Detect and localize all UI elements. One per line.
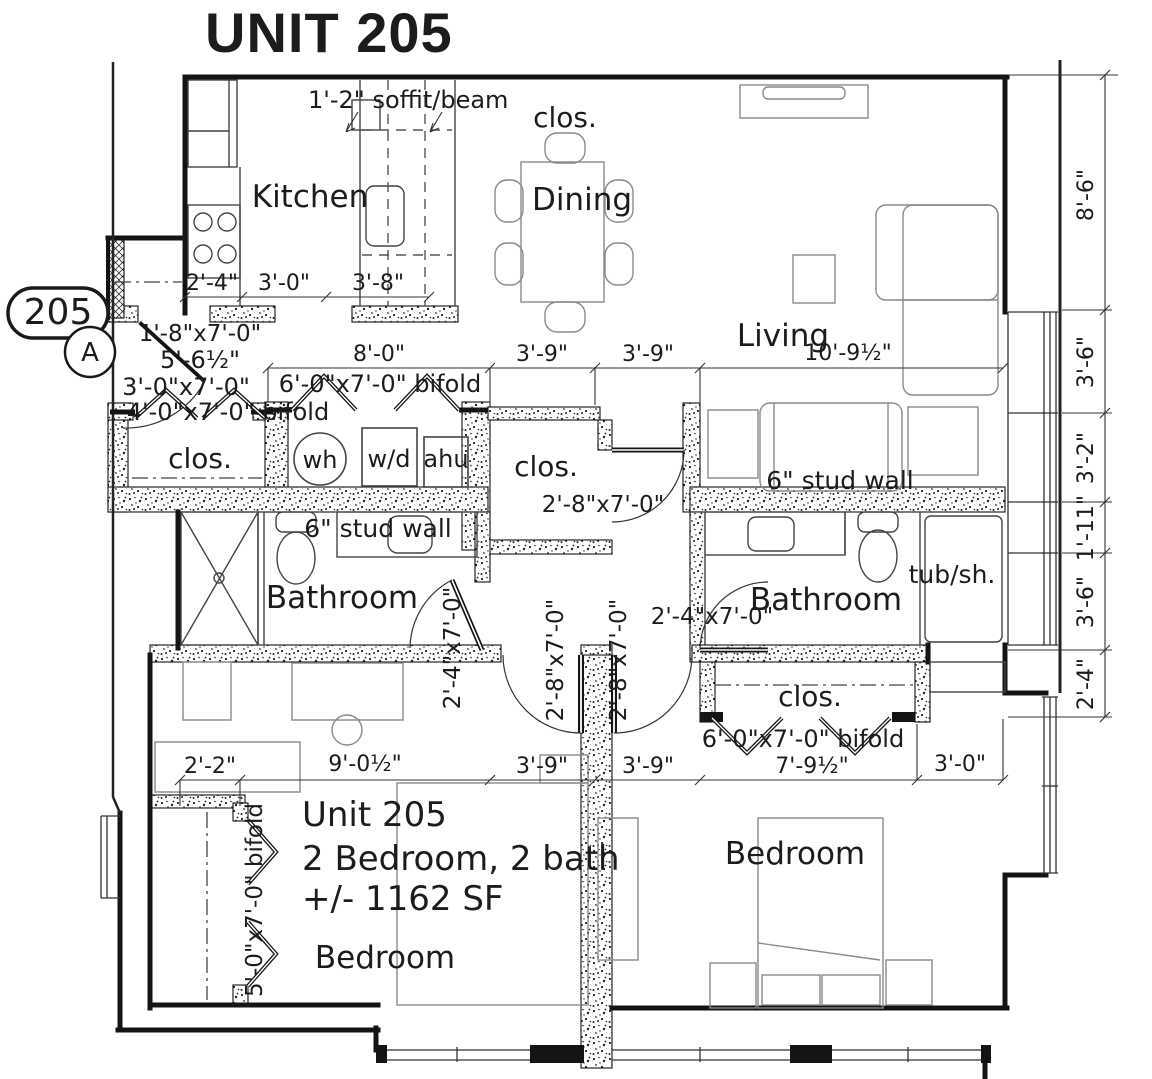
unit-tag-letter: A — [81, 338, 99, 368]
dim-right-2: 3'-2" — [1074, 432, 1099, 484]
door-label-closet-right-bifold: 6'-0"x7'-0" bifold — [702, 725, 904, 753]
dim-mid-1: 3'-9" — [516, 342, 568, 367]
floorplan-page: 205 A UNIT 205 Kitchen clos. Dining Livi… — [0, 0, 1152, 1079]
dim-right-0: 8'-6" — [1074, 169, 1099, 221]
room-label-bathroom-left: Bathroom — [266, 580, 418, 616]
dim-right-4: 3'-6" — [1074, 576, 1099, 628]
appliance-label-wh: wh — [303, 446, 338, 474]
annotation-stud-wall-right: 6" stud wall — [766, 466, 914, 495]
annotation-soffit: 1'-2" soffit/beam — [308, 86, 508, 114]
dim-bottom-1: 9'-0½" — [328, 752, 401, 777]
dim-kitchen-1: 3'-0" — [258, 271, 310, 296]
room-label-closet-right: clos. — [778, 680, 842, 713]
door-label-bed-left-closet-bifold: 5'-0"x7'-0" bifold — [242, 803, 268, 997]
page-title: UNIT 205 — [205, 1, 453, 64]
room-label-bedroom-left: Bedroom — [315, 940, 455, 976]
label-tub-shower: tub/sh. — [909, 560, 996, 589]
dim-right-1: 3'-6" — [1074, 336, 1099, 388]
room-label-kitchen: Kitchen — [252, 179, 369, 215]
dim-bottom-3: 3'-9" — [622, 754, 674, 779]
door-label-entry: 1'-8"x7'-0" — [139, 321, 262, 347]
dim-right-5: 2'-4" — [1074, 658, 1099, 710]
unit-tag-number: 205 — [24, 292, 93, 333]
dim-bottom-4: 7'-9½" — [775, 754, 848, 779]
door-label-unit-entry: 3'-0"x7'-0" — [122, 373, 250, 401]
dim-bottom-0: 2'-2" — [184, 754, 236, 779]
dim-kitchen-0: 2'-4" — [186, 271, 238, 296]
unit-tag: 205 A — [8, 288, 115, 377]
dim-mid-2: 3'-9" — [622, 342, 674, 367]
dim-right-3: 1'-11" — [1074, 495, 1099, 561]
door-label-bath-left: 2'-4"x7'-0" — [440, 587, 466, 710]
info-line-3: +/- 1162 SF — [302, 879, 504, 919]
floorplan-svg: 205 A UNIT 205 Kitchen clos. Dining Livi… — [0, 0, 1152, 1079]
door-label-laundry-bifold: 6'-0"x7'-0" bifold — [279, 370, 481, 398]
closet-stubs-right — [700, 712, 915, 722]
dim-mid-3: 10'-9½" — [804, 341, 891, 366]
dim-bottom-2: 3'-9" — [516, 754, 568, 779]
room-label-bedroom-right: Bedroom — [725, 836, 865, 872]
appliance-label-wd: w/d — [368, 445, 411, 473]
room-label-closet-entry: clos. — [168, 442, 232, 475]
dim-kitchen-2: 3'-8" — [352, 271, 404, 296]
info-line-1: Unit 205 — [302, 795, 447, 835]
info-line-2: 2 Bedroom, 2 bath — [302, 839, 620, 879]
room-label-closet-top: clos. — [533, 101, 597, 134]
dim-bottom-5: 3'-0" — [934, 752, 986, 777]
door-label-entry-width: 5'-6½" — [160, 346, 240, 374]
appliance-label-ahu: ahu — [423, 445, 468, 473]
living-furniture — [708, 85, 998, 491]
dim-mid-0: 8'-0" — [353, 342, 405, 367]
door-label-coat-bifold: 4'-0"x7'-0" bifold — [127, 398, 329, 426]
door-label-bed-right: 2'-8"x7'-0" — [606, 599, 632, 722]
room-label-closet-hall: clos. — [514, 450, 578, 483]
door-label-bed-left: 2'-8"x7'-0" — [543, 599, 569, 722]
annotation-stud-wall-left: 6" stud wall — [304, 514, 452, 543]
dining-furniture — [495, 133, 633, 332]
door-label-hall-closet: 2'-8"x7'-0" — [542, 492, 665, 518]
door-label-bath-right: 2'-4"x7'-0" — [651, 604, 774, 630]
room-label-dining: Dining — [532, 182, 632, 218]
